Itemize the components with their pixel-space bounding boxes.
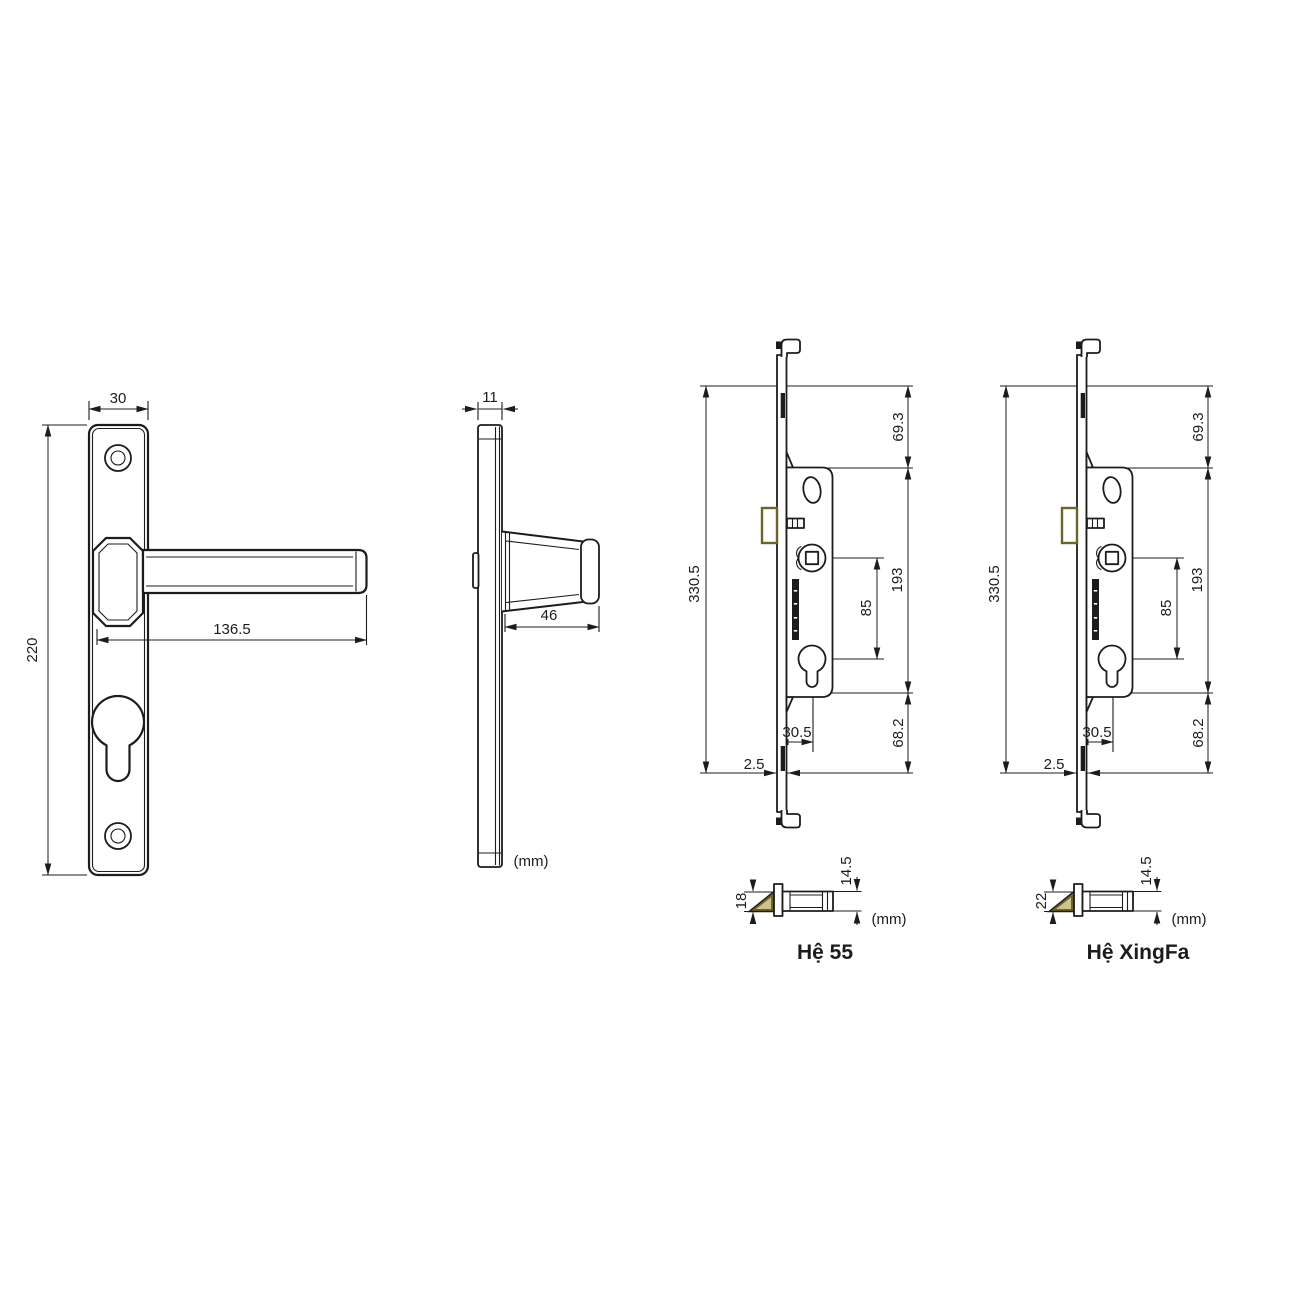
latch-height-label: 18 <box>733 893 750 910</box>
top-section-label: 69.3 <box>890 412 907 441</box>
total-height-label: 330.5 <box>986 565 1003 603</box>
total-height-label: 330.5 <box>686 565 703 603</box>
lock-unit-label: (mm) <box>872 911 907 928</box>
lock-system-name: Hệ XingFa <box>1087 941 1190 964</box>
latch-body-height-label: 14.5 <box>838 856 855 885</box>
body-section-label: 193 <box>1189 567 1206 592</box>
spindle-to-cylinder-label: 85 <box>858 600 875 617</box>
handle-length-label: 136.5 <box>213 621 251 638</box>
side-view-unit-label: (mm) <box>514 853 549 870</box>
handle-depth-label: 46 <box>541 607 558 624</box>
spindle-to-cylinder-label: 85 <box>1158 600 1175 617</box>
screw-hole-top <box>105 445 131 471</box>
backplate-outline <box>89 425 148 875</box>
plate-height-label: 220 <box>24 637 41 662</box>
latch-height-label: 22 <box>1033 893 1050 910</box>
door-handle-lock-drawing: 30 220 136.5 11 <box>0 0 1300 1300</box>
latch-body-height-label: 14.5 <box>1138 856 1155 885</box>
faceplate-thickness-label: 2.5 <box>1044 756 1065 773</box>
body-section-label: 193 <box>889 567 906 592</box>
top-section-label: 69.3 <box>1190 412 1207 441</box>
faceplate-thickness-label: 2.5 <box>744 756 765 773</box>
plate-width-label: 30 <box>110 390 127 407</box>
backset-label: 30.5 <box>782 724 811 741</box>
technical-drawing-page: 30 220 136.5 11 <box>0 0 1300 1300</box>
plate-profile <box>478 425 502 867</box>
plate-thickness-label: 11 <box>482 389 498 406</box>
screw-hole-bottom <box>105 823 131 849</box>
bottom-section-label: 68.2 <box>890 718 907 747</box>
bottom-section-label: 68.2 <box>1190 718 1207 747</box>
backset-label: 30.5 <box>1082 724 1111 741</box>
lock-unit-label: (mm) <box>1172 911 1207 928</box>
handle-cone-fill <box>502 532 583 612</box>
handle-end-cap <box>581 540 599 604</box>
spindle-boss <box>473 553 479 588</box>
lock-system-name: Hệ 55 <box>797 941 853 964</box>
